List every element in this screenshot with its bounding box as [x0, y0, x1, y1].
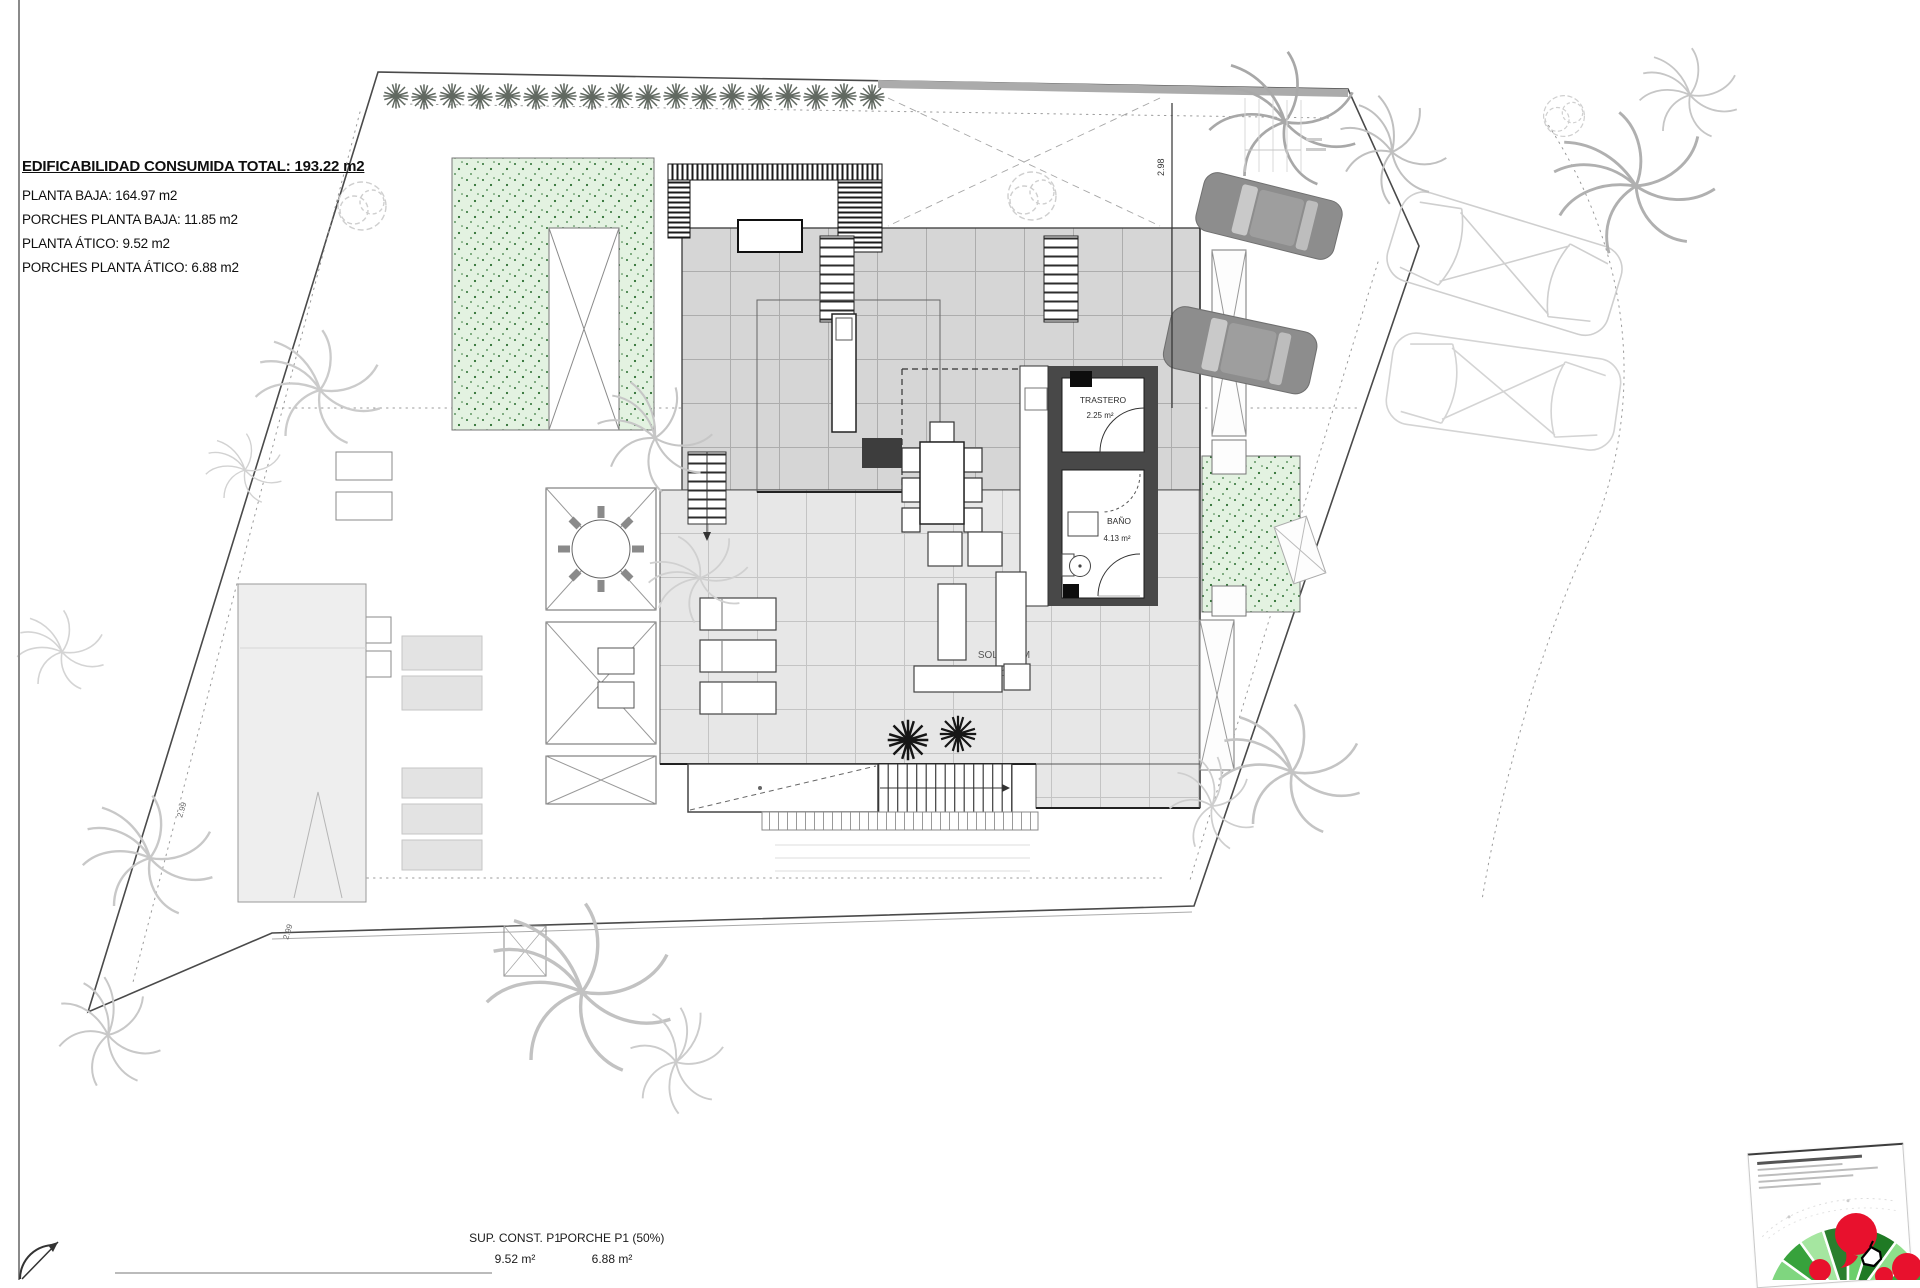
washbasin — [1068, 512, 1098, 536]
shrub — [1008, 172, 1056, 220]
bano-area: 4.13 m² — [1103, 534, 1130, 543]
sink — [1025, 388, 1047, 410]
north-arrow — [20, 1242, 58, 1279]
summary-line: PLANTA BAJA: 164.97 m2 — [22, 184, 382, 208]
gray-loungers — [402, 636, 482, 870]
card-title-bar — [1757, 1155, 1862, 1165]
bottom-porch-stairs — [688, 764, 1038, 871]
room-bano: BAÑO 4.13 m² — [1062, 470, 1144, 598]
room-trastero: TRASTERO 2.25 m² — [1062, 371, 1144, 452]
brand-logo — [1806, 1206, 1920, 1280]
summary-line: PORCHES PLANTA BAJA: 11.85 m2 — [22, 208, 382, 232]
footer-porche: PORCHE P1 (50%) 6.88 m² — [552, 1231, 672, 1266]
potted-plant — [888, 720, 929, 761]
street-car-outline — [1383, 330, 1624, 453]
service-core: TRASTERO 2.25 m² BAÑO 4.13 m² — [1020, 366, 1158, 606]
dim-left-lower: 2.99 — [281, 923, 294, 941]
summary-line: PLANTA ÁTICO: 9.52 m2 — [22, 232, 382, 256]
bano-label: BAÑO — [1107, 516, 1131, 526]
summary-line: PORCHES PLANTA ÁTICO: 6.88 m2 — [22, 256, 382, 280]
pool — [238, 584, 366, 902]
parked-car — [1193, 170, 1345, 263]
west-garden — [238, 452, 546, 976]
shrub — [1544, 96, 1585, 137]
trastero-area: 2.25 m² — [1086, 411, 1113, 420]
courtyard — [546, 488, 656, 804]
footer-label: PORCHE P1 (50%) — [552, 1231, 672, 1245]
street-car-outline — [1381, 186, 1628, 341]
round-table — [572, 520, 630, 578]
edificability-summary: EDIFICABILIDAD CONSUMIDA TOTAL: 193.22 m… — [22, 158, 382, 280]
dim-right: 2.98 — [1156, 158, 1166, 176]
potted-plant — [940, 716, 976, 752]
footer-value: 6.88 m² — [552, 1252, 672, 1266]
dim-left-upper: 2.99 — [175, 801, 188, 819]
trastero-label: TRASTERO — [1080, 395, 1127, 405]
sun-loungers — [700, 598, 776, 714]
skylight — [738, 220, 802, 252]
dining-table — [920, 442, 964, 524]
driveway-fence — [1245, 98, 1326, 172]
hedge-row — [383, 83, 884, 109]
summary-title: EDIFICABILIDAD CONSUMIDA TOTAL: 193.22 m… — [22, 158, 382, 175]
